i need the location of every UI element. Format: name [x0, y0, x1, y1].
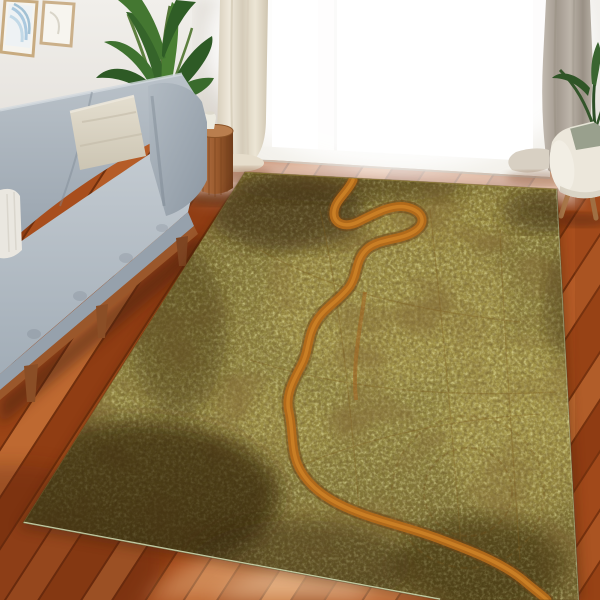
room-photo — [0, 0, 600, 600]
living-room-scene — [0, 0, 600, 600]
white-knit-pillow — [0, 189, 22, 258]
art-frame-right — [41, 2, 74, 46]
